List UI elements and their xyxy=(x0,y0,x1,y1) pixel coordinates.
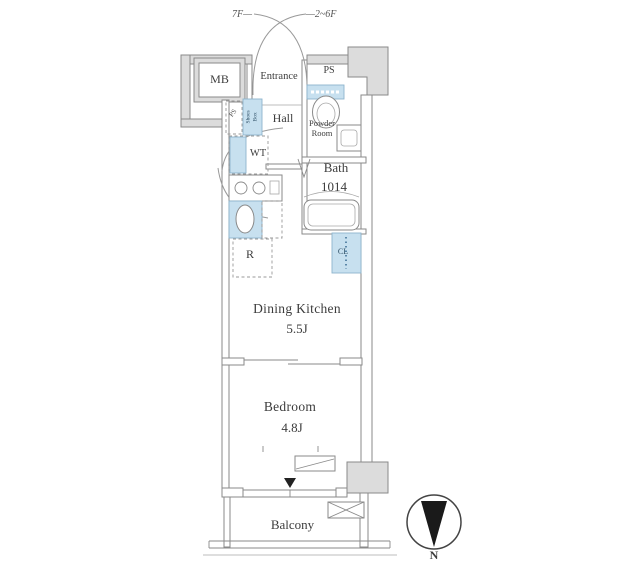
room-label-dining-kitchen: Dining Kitchen xyxy=(227,301,367,317)
floor-plan: 7F— —2~6F MB Entrance PS PS Shoes Box Ha… xyxy=(0,0,640,569)
balcony-wall-left xyxy=(224,497,230,547)
top-wall-right xyxy=(307,55,352,64)
room-label-bath-size: 1014 xyxy=(312,180,356,195)
floor-label-2-6f: —2~6F xyxy=(306,9,356,21)
shoes-box-label-line1: Shoes xyxy=(246,110,253,123)
room-label-powder-room: Powder Room xyxy=(302,119,342,139)
window-stub-left xyxy=(222,488,243,497)
room-label-bath: Bath xyxy=(312,161,360,176)
compass-north-label: N xyxy=(419,549,449,563)
room-label-closet: CL xyxy=(333,247,353,256)
kitchen-sink-bowl xyxy=(236,205,254,233)
washer-pan xyxy=(230,137,246,173)
stove xyxy=(229,175,282,201)
partition-stub-left xyxy=(222,358,244,365)
room-label-wt: WT xyxy=(246,148,270,160)
room-label-mb: MB xyxy=(196,73,243,87)
room-label-bedroom: Bedroom xyxy=(222,399,358,415)
powder-room-line2: Room xyxy=(302,129,342,139)
room-label-balcony: Balcony xyxy=(240,518,345,533)
room-label-entrance: Entrance xyxy=(250,71,308,83)
outer-wall-left-vertical xyxy=(181,55,190,127)
balcony-access-marker xyxy=(284,478,296,488)
balcony-wall-right xyxy=(360,493,368,547)
bedroom-counter xyxy=(295,456,335,471)
corner-block-top-right xyxy=(348,47,388,95)
kitchen-counter-dashed xyxy=(262,201,282,238)
room-label-fridge: R xyxy=(240,248,260,262)
wall-hall-dk xyxy=(266,164,302,169)
floor-label-7f: 7F— xyxy=(218,9,252,21)
floorplan-linework xyxy=(0,0,640,569)
room-label-ps: PS xyxy=(309,65,349,77)
partition-stub-right xyxy=(340,358,362,365)
room-label-dining-kitchen-size: 5.5J xyxy=(227,322,367,337)
window-stub-right xyxy=(336,488,347,497)
bathtub xyxy=(304,200,359,230)
room-label-bedroom-size: 4.8J xyxy=(222,421,362,436)
wall-left xyxy=(222,100,229,497)
wall-right xyxy=(361,95,372,462)
room-label-hall: Hall xyxy=(258,112,308,126)
pillar-bottom-right xyxy=(347,462,388,493)
outer-wall-left-stub xyxy=(181,119,228,127)
